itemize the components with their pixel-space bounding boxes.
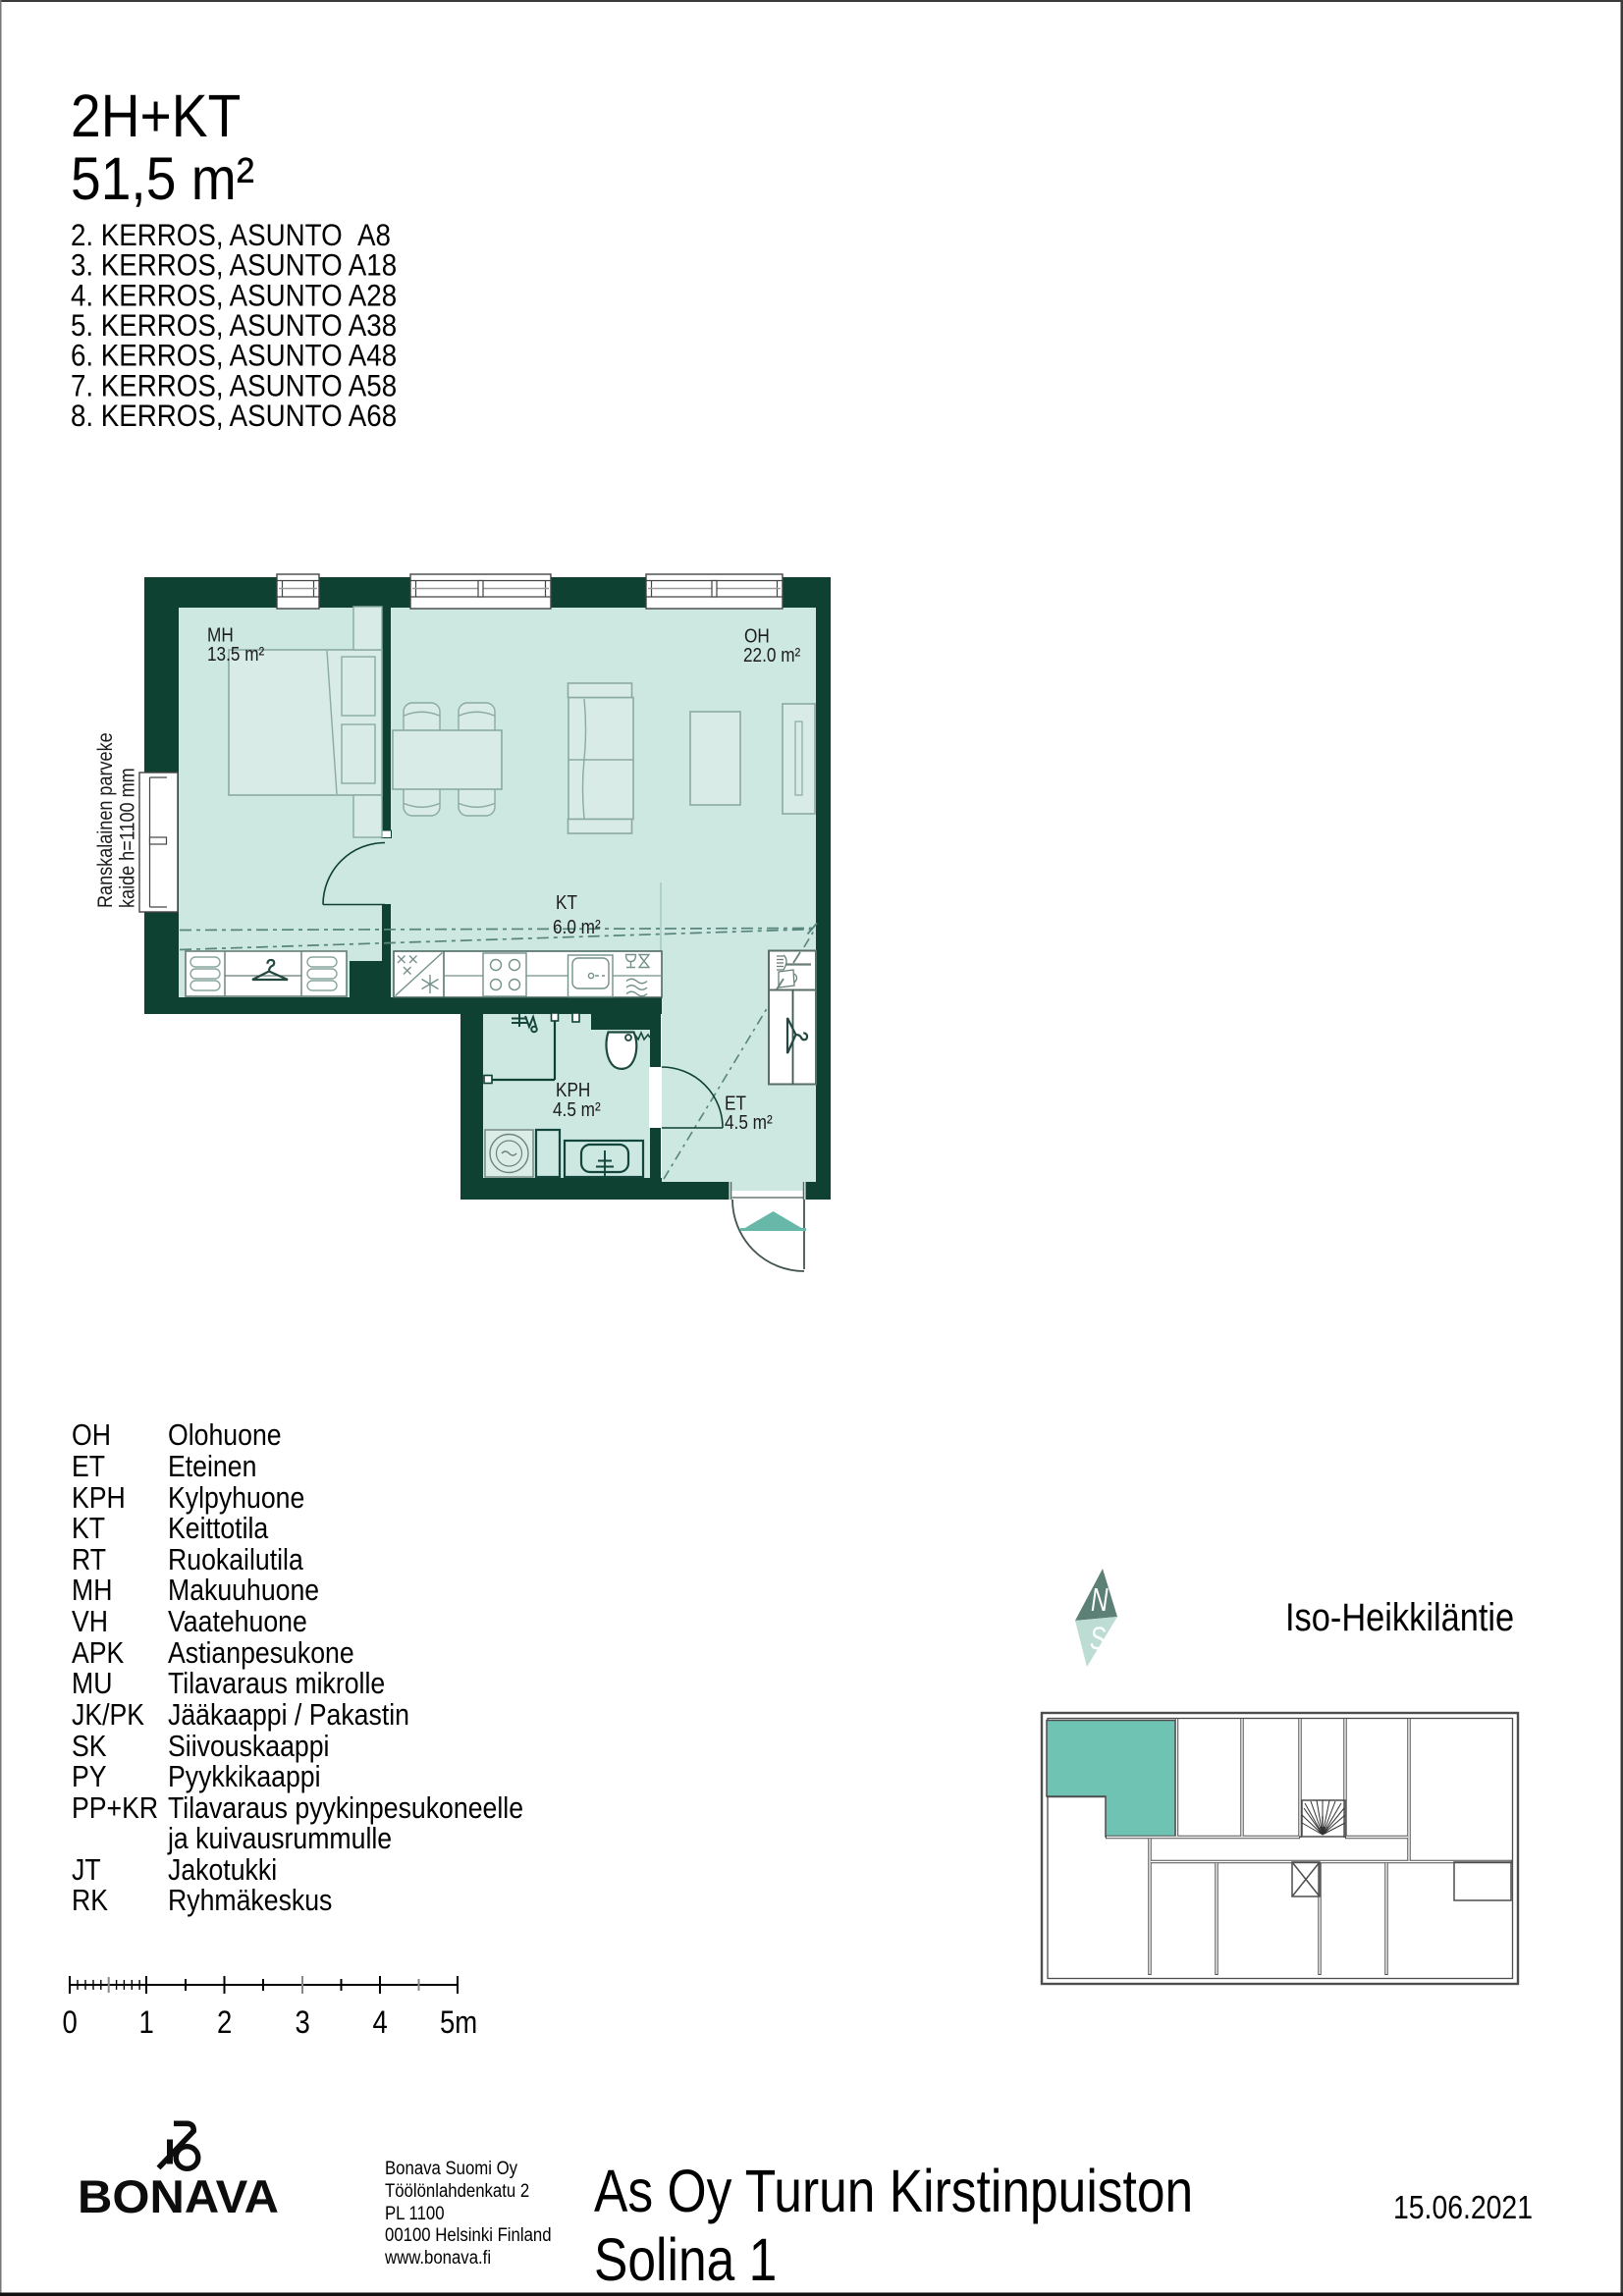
svg-text:8. KERROS, ASUNTO A68: 8. KERROS, ASUNTO A68 (71, 399, 397, 433)
svg-text:22.0 m²: 22.0 m² (743, 644, 800, 667)
svg-text:Bonava Suomi Oy: Bonava Suomi Oy (385, 2158, 518, 2178)
svg-text:5m: 5m (440, 2005, 477, 2040)
svg-text:ET: ET (72, 1450, 105, 1483)
svg-text:1: 1 (139, 2005, 154, 2040)
svg-text:kaide h=1100 mm: kaide h=1100 mm (116, 768, 139, 908)
svg-text:4: 4 (373, 2005, 388, 2040)
svg-text:JT: JT (72, 1853, 101, 1887)
svg-text:Töölönlahdenkatu 2: Töölönlahdenkatu 2 (385, 2180, 529, 2201)
svg-text:Kylpyhuone: Kylpyhuone (168, 1481, 304, 1515)
svg-text:MH: MH (72, 1574, 112, 1607)
svg-text:0: 0 (63, 2005, 78, 2040)
svg-text:VH: VH (72, 1605, 108, 1638)
svg-text:PL 1100: PL 1100 (385, 2203, 445, 2223)
svg-text:MU: MU (72, 1667, 112, 1700)
svg-text:Olohuone: Olohuone (168, 1418, 282, 1452)
svg-text:Ruokailutila: Ruokailutila (168, 1543, 304, 1576)
svg-text:Tilavaraus pyykinpesukoneelle: Tilavaraus pyykinpesukoneelle (168, 1791, 523, 1825)
svg-text:00100 Helsinki Finland: 00100 Helsinki Finland (385, 2224, 552, 2245)
svg-text:JK/PK: JK/PK (72, 1698, 144, 1732)
svg-text:51,5 m²: 51,5 m² (71, 145, 254, 212)
svg-text:KPH: KPH (72, 1481, 126, 1515)
svg-text:4.5 m²: 4.5 m² (725, 1111, 773, 1134)
svg-text:2: 2 (217, 2005, 232, 2040)
svg-text:Keittotila: Keittotila (168, 1512, 269, 1545)
svg-text:13.5 m²: 13.5 m² (207, 643, 264, 666)
svg-text:www.bonava.fi: www.bonava.fi (384, 2247, 491, 2268)
svg-text:Jääkaappi / Pakastin: Jääkaappi / Pakastin (168, 1698, 409, 1732)
svg-text:S: S (1090, 1622, 1106, 1657)
svg-text:PY: PY (72, 1760, 107, 1793)
svg-text:Iso-Heikkiläntie: Iso-Heikkiläntie (1285, 1595, 1514, 1639)
svg-text:Jakotukki: Jakotukki (168, 1853, 277, 1887)
svg-text:PP+KR: PP+KR (72, 1791, 158, 1825)
svg-text:3. KERROS, ASUNTO A18: 3. KERROS, ASUNTO A18 (71, 248, 397, 283)
svg-text:KT: KT (72, 1512, 105, 1545)
svg-text:SK: SK (72, 1730, 107, 1763)
svg-text:4.5 m²: 4.5 m² (553, 1098, 601, 1121)
svg-text:N: N (1091, 1583, 1109, 1619)
svg-text:Pyykkikaappi: Pyykkikaappi (168, 1760, 321, 1793)
svg-text:2H+KT: 2H+KT (71, 82, 241, 149)
svg-text:KT: KT (556, 891, 577, 914)
svg-text:BONAVA: BONAVA (78, 2170, 279, 2222)
svg-text:RT: RT (72, 1543, 106, 1576)
svg-text:Solina 1: Solina 1 (594, 2226, 777, 2293)
svg-text:6.0 m²: 6.0 m² (553, 916, 601, 938)
svg-text:OH: OH (72, 1418, 111, 1452)
svg-text:15.06.2021: 15.06.2021 (1393, 2189, 1533, 2226)
svg-text:As Oy Turun Kirstinpuiston: As Oy Turun Kirstinpuiston (594, 2158, 1193, 2224)
svg-text:RK: RK (72, 1884, 108, 1917)
svg-text:3: 3 (296, 2005, 310, 2040)
svg-text:Siivouskaappi: Siivouskaappi (168, 1730, 329, 1763)
svg-text:ja kuivausrummulle: ja kuivausrummulle (167, 1822, 392, 1855)
svg-text:Ranskalainen parveke: Ranskalainen parveke (94, 732, 118, 908)
svg-text:Makuuhuone: Makuuhuone (168, 1574, 319, 1607)
svg-text:Astianpesukone: Astianpesukone (168, 1636, 354, 1670)
svg-text:APK: APK (72, 1636, 124, 1670)
svg-text:6. KERROS, ASUNTO A48: 6. KERROS, ASUNTO A48 (71, 339, 397, 373)
svg-text:Ryhmäkeskus: Ryhmäkeskus (168, 1884, 332, 1917)
svg-text:Eteinen: Eteinen (168, 1450, 256, 1483)
svg-text:Vaatehuone: Vaatehuone (168, 1605, 307, 1638)
svg-text:Tilavaraus mikrolle: Tilavaraus mikrolle (168, 1667, 385, 1700)
